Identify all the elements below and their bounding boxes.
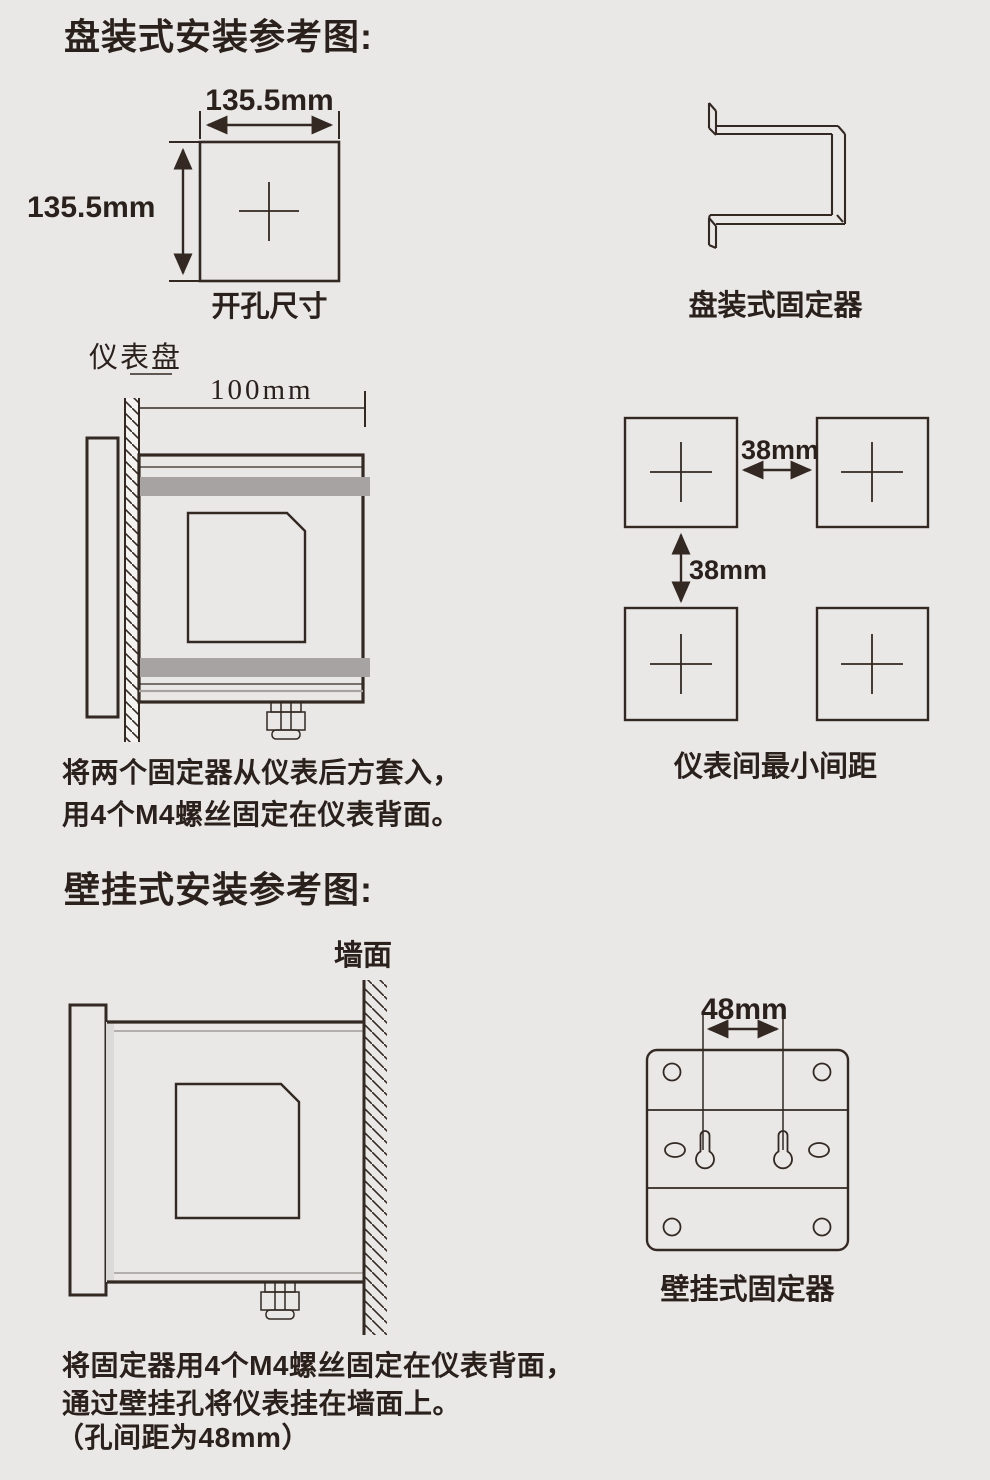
wall-section-title: 壁挂式安装参考图: [64,869,373,910]
wall-note-line2: 通过壁挂孔将仪表挂在墙面上。 [62,1388,461,1420]
spacing-horizontal-dimension: 38mm [741,435,819,466]
panel-bracket-caption: 盘装式固定器 [688,290,863,323]
wall-note-line3: （孔间距为48mm） [56,1422,310,1454]
wall-note-line1: 将固定器用4个M4螺丝固定在仪表背面， [62,1350,574,1382]
installation-manual-page: 盘装式安装参考图: 135.5mm 135.5mm 开孔尺寸 盘装式固定器 仪表… [0,0,990,1480]
fixer-hole-distance-dimension: 48mm [701,993,788,1028]
wall-mount-side-view-drawing [70,980,387,1335]
cutout-height-dimension: 135.5mm [27,191,155,226]
spacing-vertical-dimension: 38mm [689,555,767,586]
panel-section-title: 盘装式安装参考图: [64,16,373,57]
min-spacing-caption: 仪表间最小间距 [628,751,923,784]
cable-gland-drawing [261,1282,299,1319]
panel-note-line2: 用4个M4螺丝固定在仪表背面。 [62,799,460,831]
depth-dimension: 100mm [210,374,314,407]
wall-fixer-caption: 壁挂式固定器 [647,1274,848,1307]
cable-gland-drawing [267,702,305,739]
instrument-panel-label: 仪表盘 [89,342,182,375]
wall-surface-label: 墙面 [334,940,392,973]
cutout-width-dimension: 135.5mm [197,84,342,119]
cutout-caption: 开孔尺寸 [197,291,342,324]
panel-note-line1: 将两个固定器从仪表后方套入， [62,757,461,789]
wall-fixer-drawing [647,1012,848,1250]
panel-mount-side-view-drawing [87,374,370,742]
panel-bracket-drawing [709,103,845,248]
cutout-drawing [169,111,339,281]
